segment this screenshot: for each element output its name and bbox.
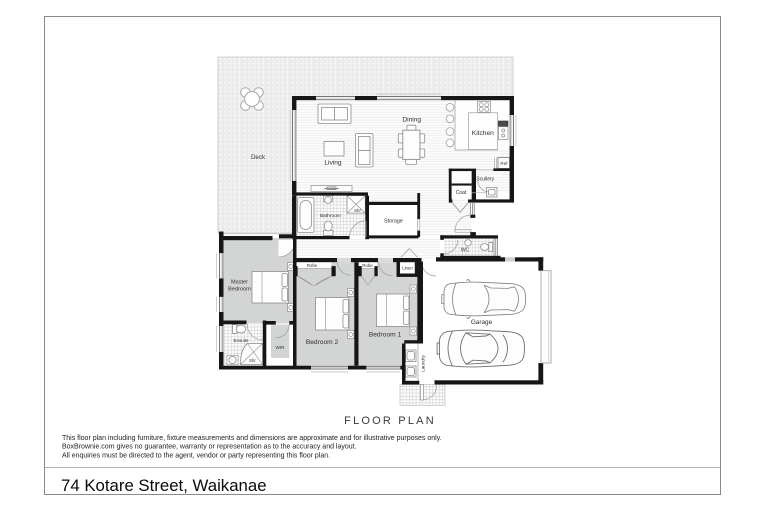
svg-text:Shr: Shr bbox=[354, 208, 361, 213]
svg-text:Kitchen: Kitchen bbox=[472, 130, 494, 137]
svg-text:Master: Master bbox=[231, 279, 248, 285]
svg-text:WIR: WIR bbox=[276, 345, 286, 350]
svg-text:Deck: Deck bbox=[251, 154, 266, 161]
svg-text:Shr: Shr bbox=[249, 358, 256, 363]
svg-text:Dining: Dining bbox=[402, 116, 421, 123]
svg-text:Robe: Robe bbox=[362, 263, 373, 268]
svg-text:Laundry: Laundry bbox=[421, 355, 426, 372]
svg-text:Linen: Linen bbox=[402, 266, 413, 271]
svg-text:WC: WC bbox=[461, 248, 470, 254]
svg-text:Bedroom 2: Bedroom 2 bbox=[306, 339, 339, 346]
svg-text:Bathroom: Bathroom bbox=[320, 213, 341, 219]
svg-text:Garage: Garage bbox=[471, 319, 493, 326]
svg-text:Coat: Coat bbox=[456, 190, 467, 196]
svg-text:Living: Living bbox=[324, 160, 342, 167]
svg-text:Storage: Storage bbox=[384, 219, 403, 225]
svg-text:BoxBrownie.com gives no guaran: BoxBrownie.com gives no guarantee, warra… bbox=[62, 444, 357, 451]
svg-text:74 Kotare Street, Waikanae: 74 Kotare Street, Waikanae bbox=[61, 476, 267, 495]
svg-text:Scullery: Scullery bbox=[476, 177, 494, 183]
svg-text:All enquiries must be directed: All enquiries must be directed to the ag… bbox=[62, 452, 330, 459]
svg-text:This floor plan including furn: This floor plan including furniture, fix… bbox=[62, 435, 442, 442]
svg-text:Bedroom 1: Bedroom 1 bbox=[369, 332, 402, 339]
svg-text:Robe: Robe bbox=[307, 263, 318, 268]
svg-text:Ref: Ref bbox=[500, 161, 508, 166]
svg-text:Ensuite: Ensuite bbox=[233, 338, 249, 343]
svg-text:Bedroom: Bedroom bbox=[228, 286, 251, 292]
svg-text:FLOOR PLAN: FLOOR PLAN bbox=[344, 415, 436, 427]
